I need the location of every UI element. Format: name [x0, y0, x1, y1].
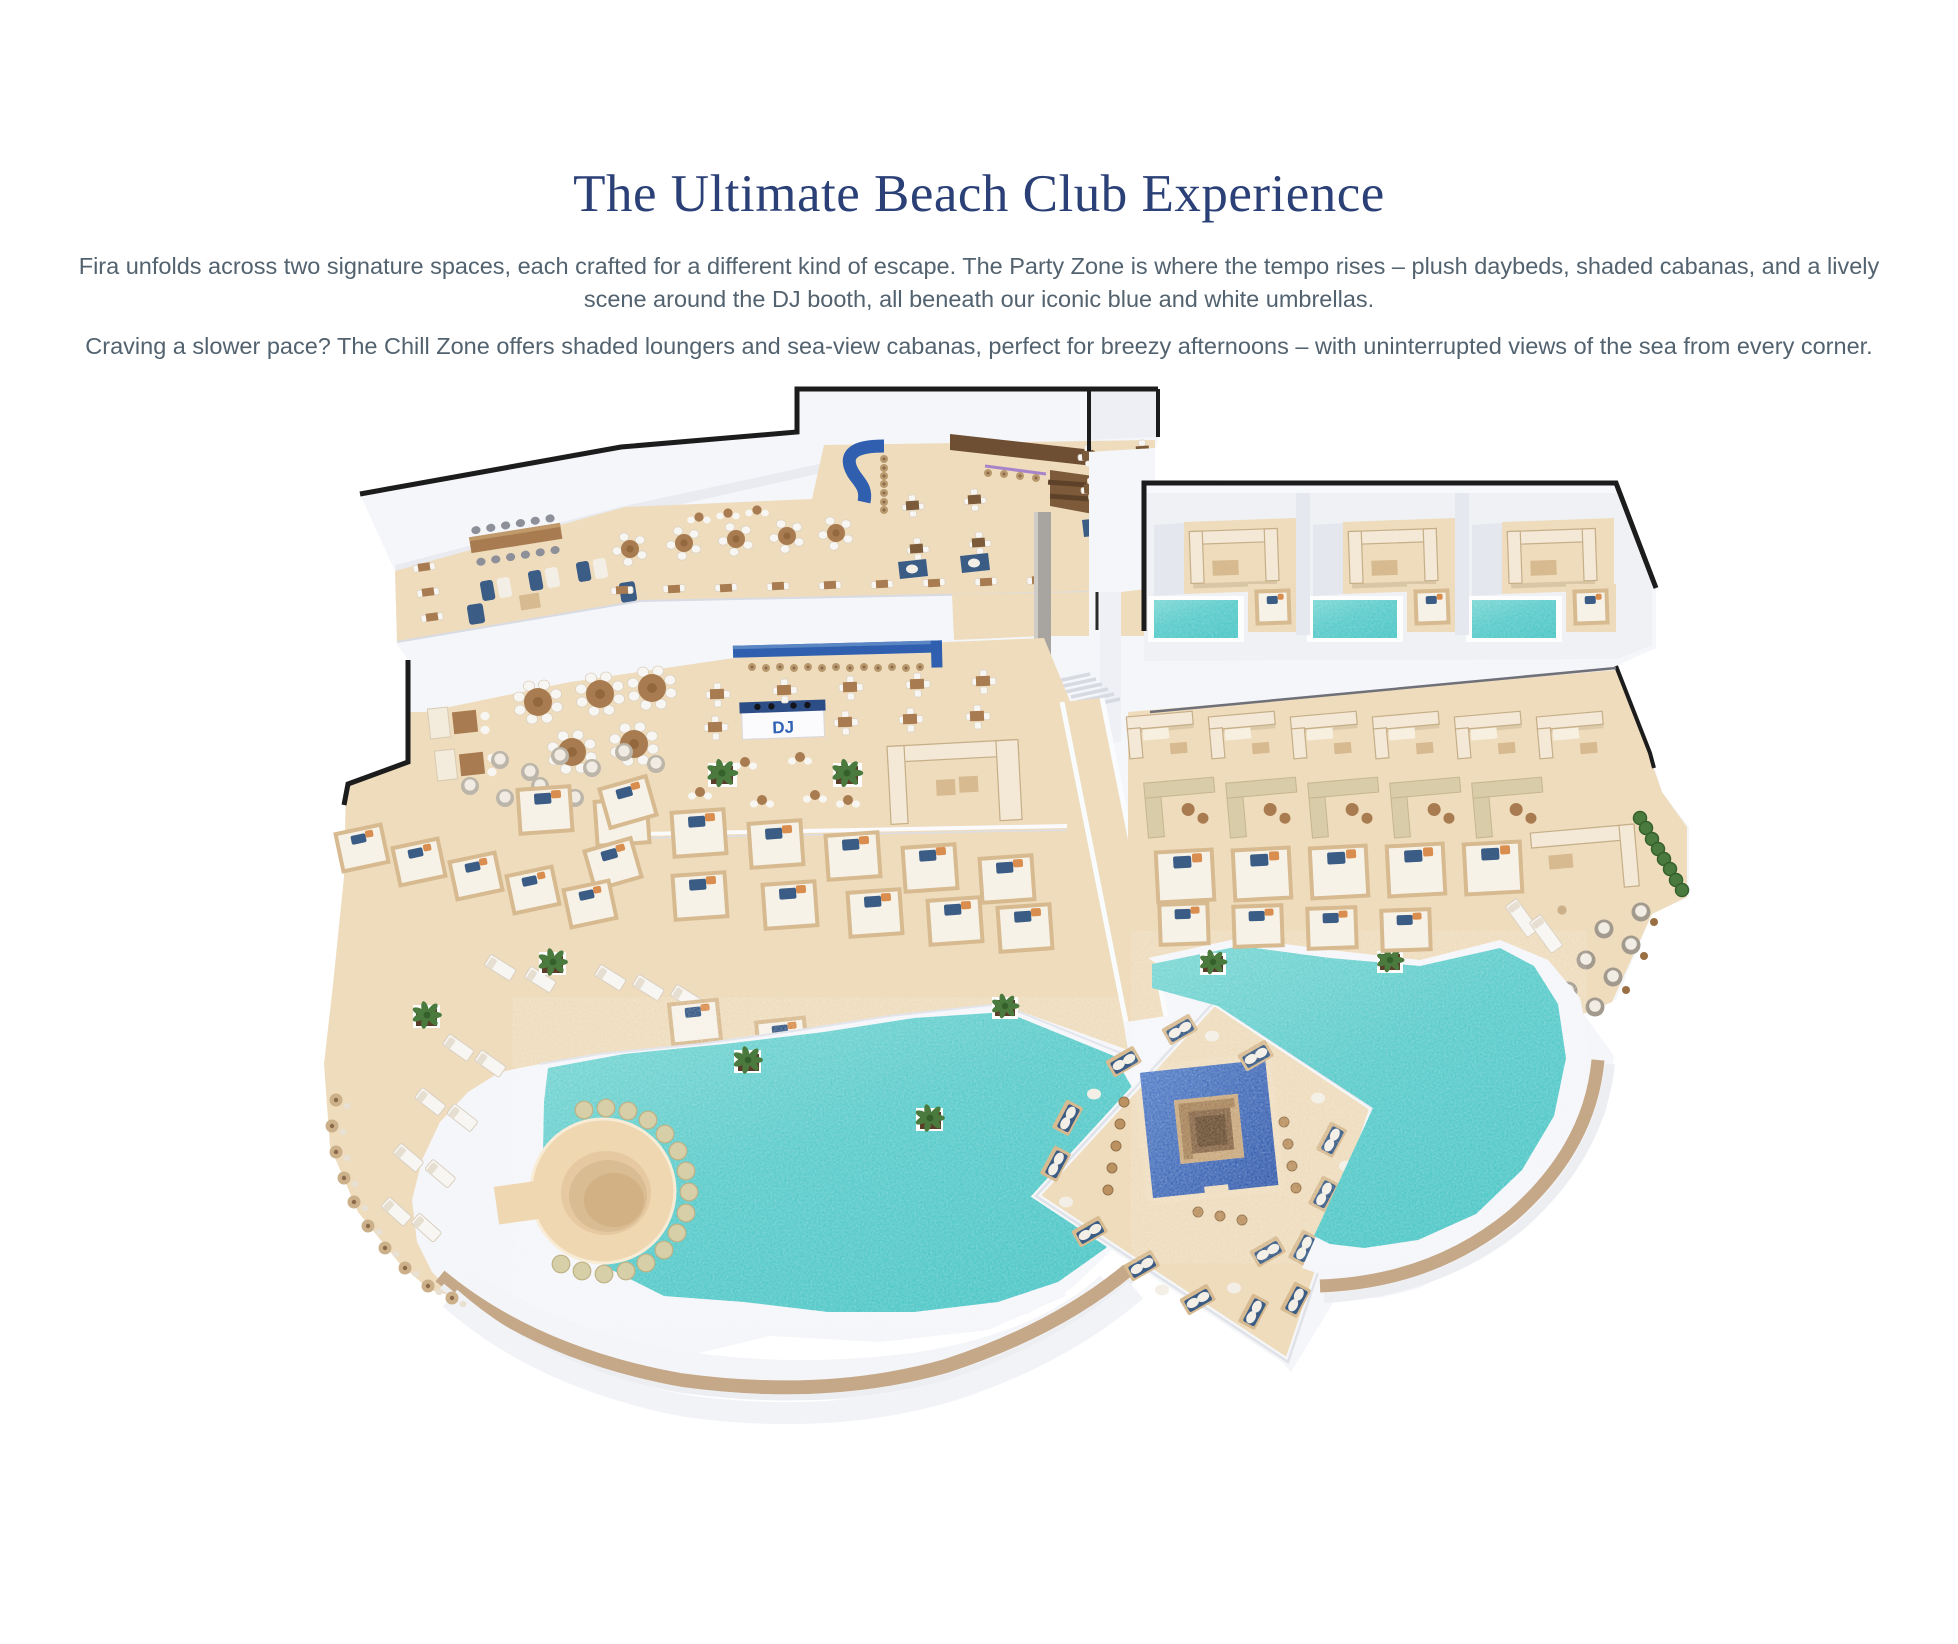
- svg-text:DJ: DJ: [772, 718, 794, 738]
